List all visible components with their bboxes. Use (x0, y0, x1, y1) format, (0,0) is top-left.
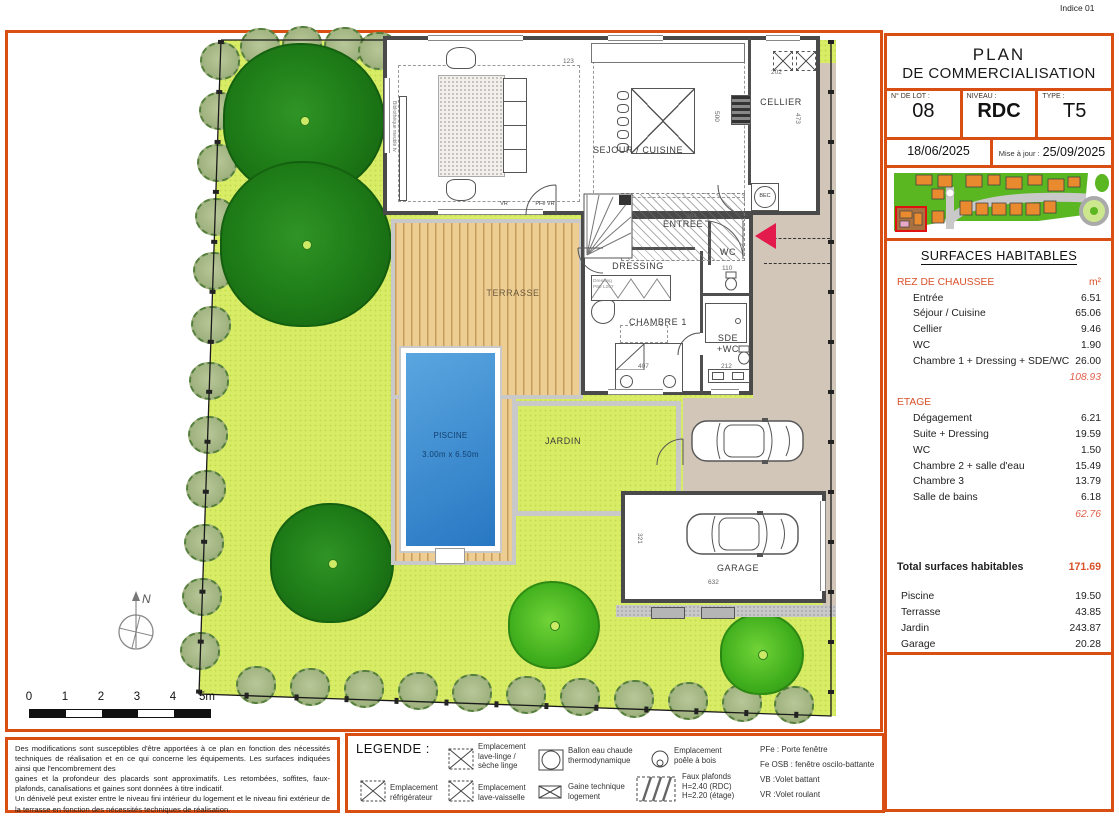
dimension: 632 (708, 579, 719, 586)
armchair (446, 47, 476, 69)
legend-item-label: Faux plafonds H=2.40 (RDC) H=2.20 (étage… (682, 772, 734, 801)
niveau-cell: NIVEAU : RDC (963, 91, 1039, 137)
bush (236, 666, 276, 704)
armchair (446, 179, 476, 201)
tree (720, 613, 804, 695)
dimension: 500 (713, 111, 720, 122)
lot-value: 08 (891, 100, 956, 123)
wood-stove-icon (650, 750, 670, 770)
bush (188, 416, 228, 454)
bar-stool (617, 104, 629, 113)
key-plan (887, 168, 1111, 241)
bush (668, 682, 708, 720)
scale-tick: 5m (196, 691, 218, 703)
title-block-panel: PLAN DE COMMERCIALISATION N° DE LOT : 08… (884, 33, 1114, 812)
surface-row: Chambre 313.79 (897, 474, 1101, 490)
row-label: Chambre 3 (913, 476, 964, 487)
row-value: 243.87 (1070, 623, 1102, 634)
unit-label: m² (1089, 277, 1101, 288)
row-value: 19.59 (1075, 429, 1101, 440)
water-heater-icon (538, 749, 564, 771)
vanity-sink (732, 372, 744, 380)
niveau-label: NIVEAU : (967, 93, 1032, 100)
sheet-title: PLAN DE COMMERCIALISATION (887, 36, 1111, 91)
abbrev-line: VB :Volet battant (760, 772, 874, 787)
total-label: Total surfaces habitables (897, 561, 1023, 573)
lot-info-row: N° DE LOT : 08 NIVEAU : RDC TYPE : T5 (887, 91, 1111, 140)
surface-row: Chambre 2 + salle d'eau15.49 (897, 458, 1101, 474)
title-line1: PLAN (887, 45, 1111, 65)
surface-row: WC1.50 (897, 442, 1101, 458)
shower-drain (735, 318, 741, 324)
room-label-chambre1: CHAMBRE 1 (608, 317, 708, 328)
legend-item-label: Emplacement lave-linge / sèche linge (478, 742, 526, 771)
date-value: 18/06/2025 (887, 140, 993, 165)
surface-row: Salle de bains6.18 (897, 490, 1101, 506)
legend-item-label: Emplacement réfrigérateur (390, 783, 438, 802)
legend-item-label: Emplacement poêle à bois (674, 746, 722, 765)
surfaces-table: SURFACES HABITABLES REZ DE CHAUSSEE m² E… (887, 241, 1111, 652)
row-label: Séjour / Cuisine (913, 308, 986, 319)
surface-row: Cellier9.46 (897, 322, 1101, 338)
row-value: 9.46 (1081, 324, 1101, 335)
bush (398, 672, 438, 710)
disclaimer-text: gaines et la profondeur des placards son… (15, 774, 330, 794)
legend-item-label: Ballon eau chaude thermodynamique (568, 746, 633, 765)
niveau-value: RDC (967, 100, 1032, 123)
tv-unit (399, 96, 407, 201)
scale-tick: 4 (162, 691, 184, 703)
surface-row: Dégagement6.21 (897, 410, 1101, 426)
dimension: 110 (722, 265, 732, 272)
surface-row: Suite + Dressing19.59 (897, 426, 1101, 442)
window (608, 35, 663, 41)
bush (191, 306, 231, 344)
row-label: Jardin (901, 623, 929, 634)
row-value: 20.28 (1075, 639, 1101, 650)
room-label-sejour: SEJOUR / CUISINE (563, 145, 713, 156)
legend-abbreviations: PFe : Porte fenêtre Fe OSB : fenêtre osc… (760, 742, 874, 802)
row-label: Chambre 2 + salle d'eau (913, 461, 1025, 472)
row-value: 19.50 (1075, 591, 1101, 602)
surfaces-title: SURFACES HABITABLES (921, 248, 1077, 265)
pool-label: PISCINE 3.00m x 6.50m (403, 421, 498, 459)
wall (700, 293, 752, 296)
update-label: Mise à jour : (999, 149, 1040, 158)
room-label-garage: GARAGE (693, 563, 783, 574)
row-label: Salle de bains (913, 492, 978, 503)
disclaimer-text: Des modifications sont susceptibles d'êt… (15, 744, 330, 774)
rdc-section-header: REZ DE CHAUSSEE m² (897, 275, 1101, 290)
surface-row: Terrasse43.85 (897, 605, 1101, 621)
bush (290, 668, 330, 706)
window (384, 78, 390, 153)
scale-bar: 0 1 2 3 4 5m (23, 691, 228, 729)
surface-row: Jardin243.87 (897, 620, 1101, 636)
bush (184, 524, 224, 562)
bar-stool (617, 117, 629, 126)
row-label: Dégagement (913, 413, 972, 424)
toilet-icon (723, 271, 739, 291)
scale-segments (29, 709, 211, 718)
disclaimer-text: Un dénivelé peut exister entre le niveau… (15, 794, 330, 814)
surface-row: Chambre 1 + Dressing + SDE/WC26.00 (897, 354, 1101, 370)
row-value: 1.50 (1081, 445, 1101, 456)
legend-title: LEGENDE : (356, 741, 430, 756)
row-value: 65.06 (1075, 308, 1101, 319)
bin (701, 607, 735, 619)
row-value: 1.90 (1081, 340, 1101, 351)
scale-tick: 2 (90, 691, 112, 703)
scale-tick: 1 (54, 691, 76, 703)
bush (452, 674, 492, 712)
dressing-note: Dressing P60 L267 (593, 279, 614, 291)
room-label-sde: SDE +WC (708, 333, 748, 355)
row-label: Chambre 1 + Dressing + SDE/WC (913, 356, 1069, 367)
surface-row: Garage20.28 (897, 636, 1101, 652)
false-ceiling-icon (636, 776, 676, 802)
ceiling-dashed-zone (398, 65, 580, 202)
row-label: Suite + Dressing (913, 429, 989, 440)
dimension: 407 (638, 363, 649, 370)
row-label: Cellier (913, 324, 942, 335)
etage-label: ETAGE (897, 397, 931, 408)
dimension: 473 (794, 113, 801, 124)
row-value: 13.79 (1075, 476, 1101, 487)
row-value: 6.51 (1081, 293, 1101, 304)
bush (189, 362, 229, 400)
dishwasher-icon (448, 780, 474, 802)
wall (700, 355, 703, 393)
row-label: WC (913, 340, 930, 351)
north-arrow: N (106, 588, 166, 660)
bush (186, 470, 226, 508)
row-label: Terrasse (901, 607, 940, 618)
lot-label: N° DE LOT : (891, 93, 956, 100)
tiny-label-vr: VR (494, 201, 514, 208)
rdc-label: REZ DE CHAUSSEE (897, 277, 994, 288)
plan-drawing-area: PISCINE 3.00m x 6.50m Bibliothèque meubl… (5, 30, 883, 732)
title-line2: DE COMMERCIALISATION (887, 65, 1111, 82)
bush (344, 670, 384, 708)
sofa (503, 78, 527, 173)
surface-row: Entrée6.51 (897, 290, 1101, 306)
room-label-entree: ENTREE (648, 219, 718, 230)
north-letter: N (142, 592, 151, 606)
room-label-cellier: CELLIER (746, 97, 816, 108)
legend-item-label: Gaine technique logement (568, 782, 625, 801)
washer-box (773, 51, 793, 71)
bush (614, 680, 654, 718)
vanity-sink (712, 372, 724, 380)
room-label-terrasse: TERRASSE (463, 288, 563, 299)
disclaimer-box: Des modifications sont susceptibles d'êt… (5, 737, 340, 813)
surface-row: Piscine19.50 (897, 589, 1101, 605)
car-top-view (685, 511, 800, 557)
scale-tick: 0 (18, 691, 40, 703)
date-row: 18/06/2025 Mise à jour : 25/09/2025 (887, 140, 1111, 168)
tree (220, 161, 392, 327)
tiny-label-pfe: PFe VR (528, 201, 562, 208)
type-value: T5 (1042, 100, 1107, 123)
bush (560, 678, 600, 716)
room-label-jardin: JARDIN (528, 436, 598, 447)
total-value: 171.69 (1069, 561, 1101, 573)
room-label-wc: WC (713, 247, 743, 258)
row-value: 6.18 (1081, 492, 1101, 503)
bar-stool (617, 130, 629, 139)
empty-panel-section (887, 652, 1111, 809)
car-top-view (690, 418, 805, 464)
etage-section-header: ETAGE (897, 395, 1101, 410)
dimension: 202 (771, 69, 782, 76)
bin (651, 607, 685, 619)
indice-label: Indice 01 (1060, 3, 1095, 13)
etage-subtotal: 62.76 (897, 506, 1101, 523)
bush (200, 42, 240, 80)
pool-name: PISCINE (433, 431, 467, 440)
rdc-subtotal: 108.93 (897, 369, 1101, 386)
row-value: 43.85 (1075, 607, 1101, 618)
fridge-icon (360, 780, 386, 802)
dimension: 123 (563, 58, 574, 65)
window (766, 35, 800, 41)
row-label: WC (913, 445, 930, 456)
annex-rows: Piscine19.50 Terrasse43.85 Jardin243.87 … (897, 589, 1101, 653)
surface-row: Séjour / Cuisine65.06 (897, 306, 1101, 322)
abbrev-line: PFe : Porte fenêtre (760, 742, 874, 757)
bar-stool (617, 91, 629, 100)
tv-unit-label: Bibliothèque meuble tv (391, 101, 397, 152)
dimension: 321 (636, 533, 643, 544)
row-label: Garage (901, 639, 935, 650)
staircase (583, 193, 633, 259)
surface-row: WC1.90 (897, 338, 1101, 354)
row-value: 6.21 (1081, 413, 1101, 424)
row-value: 15.49 (1075, 461, 1101, 472)
pillow (620, 375, 633, 388)
row-label: Entrée (913, 293, 943, 304)
bush (506, 676, 546, 714)
pool-ladder (435, 548, 465, 564)
legend-box: LEGENDE : Emplacement lave-linge / sèche… (345, 733, 885, 813)
window (608, 389, 663, 395)
garage-door (820, 501, 826, 591)
entrance-arrow (755, 223, 776, 249)
tree (508, 581, 600, 669)
row-value: 26.00 (1075, 356, 1101, 367)
abbrev-line: VR :Volet roulant (760, 787, 874, 802)
window (711, 389, 739, 395)
key-plan-map (888, 171, 1110, 235)
kitchen-counter (591, 43, 745, 63)
window (428, 35, 523, 41)
total-row: Total surfaces habitables 171.69 (897, 559, 1101, 575)
update-value: 25/09/2025 (1043, 145, 1106, 159)
washer-icon (448, 748, 474, 770)
tree (270, 503, 394, 623)
room-label-dressing: DRESSING (593, 261, 683, 272)
type-cell: TYPE : T5 (1038, 91, 1111, 137)
dimension: 212 (721, 363, 732, 370)
gate-axis (764, 263, 830, 264)
bush (182, 578, 222, 616)
row-label: Piscine (901, 591, 934, 602)
pool-size: 3.00m x 6.50m (422, 450, 479, 459)
plan-sheet: { "indice": "Indice 01", "title_block": … (0, 0, 1119, 839)
bec-label: BEC (752, 193, 778, 200)
type-label: TYPE : (1042, 93, 1107, 100)
legend-item-label: Emplacement lave-vaisselle (478, 783, 526, 802)
update-cell: Mise à jour : 25/09/2025 (993, 145, 1111, 159)
abbrev-line: Fe OSB : fenêtre oscilo-battante (760, 757, 874, 772)
lot-cell: N° DE LOT : 08 (887, 91, 963, 137)
bush (180, 632, 220, 670)
dimension: 364 (686, 213, 697, 220)
bush (774, 686, 814, 724)
pillow (663, 375, 676, 388)
dryer-box (796, 51, 816, 71)
scale-tick: 3 (126, 691, 148, 703)
terrace-door (438, 209, 543, 215)
utility-duct-icon (538, 785, 562, 799)
